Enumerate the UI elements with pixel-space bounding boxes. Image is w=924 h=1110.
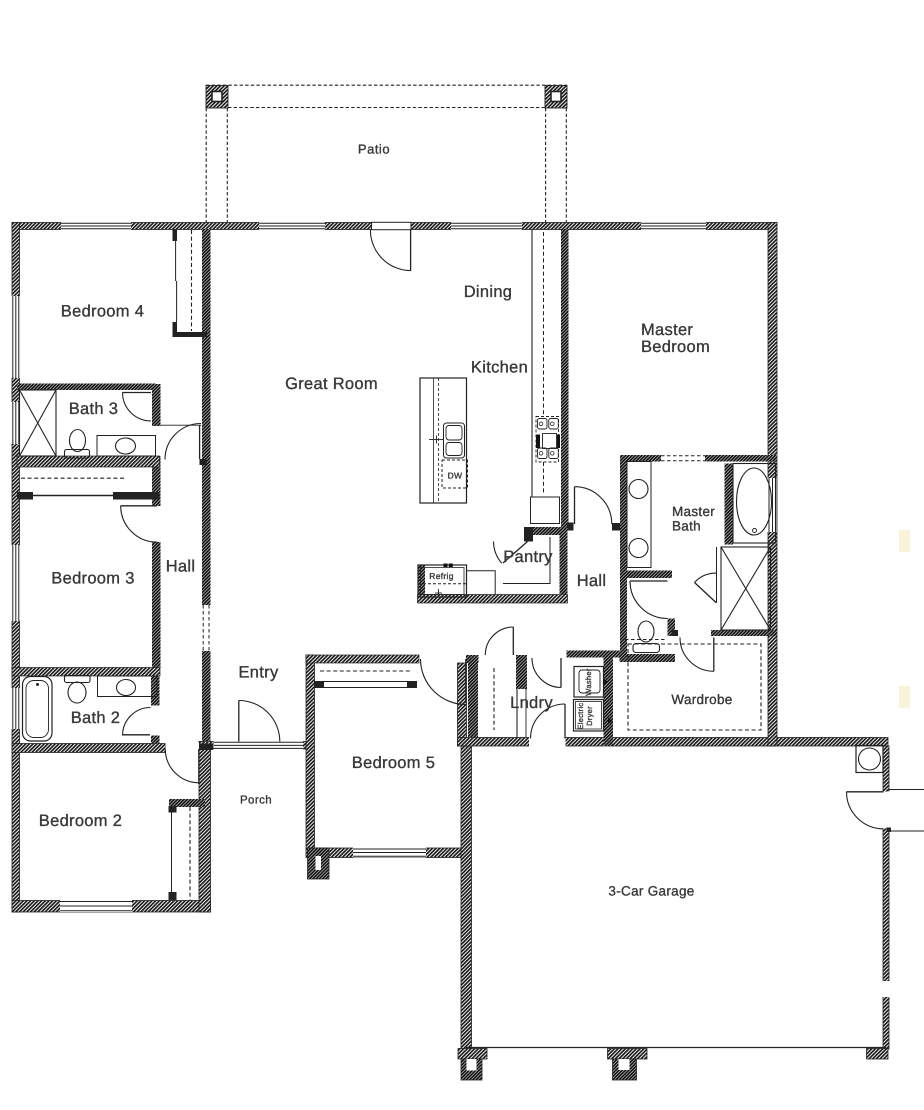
svg-text:Refrig: Refrig	[429, 571, 453, 581]
svg-text:Porch: Porch	[240, 795, 272, 807]
svg-text:Bedroom 2: Bedroom 2	[39, 812, 122, 830]
svg-text:Hall: Hall	[577, 572, 607, 590]
svg-text:Wardrobe: Wardrobe	[671, 692, 732, 707]
svg-text:Master: Master	[672, 504, 715, 519]
svg-text:Master: Master	[641, 321, 693, 339]
svg-text:Great Room: Great Room	[285, 375, 378, 393]
svg-text:Lndry: Lndry	[510, 694, 553, 712]
svg-text:Bath: Bath	[672, 519, 701, 534]
svg-text:Bedroom: Bedroom	[641, 338, 710, 356]
svg-text:Entry: Entry	[238, 664, 278, 682]
svg-text:Dryer: Dryer	[585, 706, 594, 726]
svg-text:Pantry: Pantry	[503, 548, 553, 566]
svg-text:Bath 3: Bath 3	[69, 400, 119, 418]
svg-text:Bedroom 4: Bedroom 4	[61, 303, 144, 321]
svg-text:Dining: Dining	[464, 283, 513, 301]
svg-text:DW: DW	[448, 471, 463, 481]
svg-text:Bedroom 5: Bedroom 5	[352, 754, 435, 772]
svg-text:Patio: Patio	[358, 142, 390, 157]
svg-text:Bath 2: Bath 2	[71, 709, 121, 727]
svg-text:Washer: Washer	[584, 668, 593, 696]
svg-text:Bedroom 3: Bedroom 3	[51, 570, 134, 588]
svg-text:Hall: Hall	[166, 558, 196, 576]
svg-text:3-Car Garage: 3-Car Garage	[608, 884, 694, 899]
svg-text:Kitchen: Kitchen	[471, 359, 528, 377]
svg-text:Electric: Electric	[576, 703, 585, 730]
